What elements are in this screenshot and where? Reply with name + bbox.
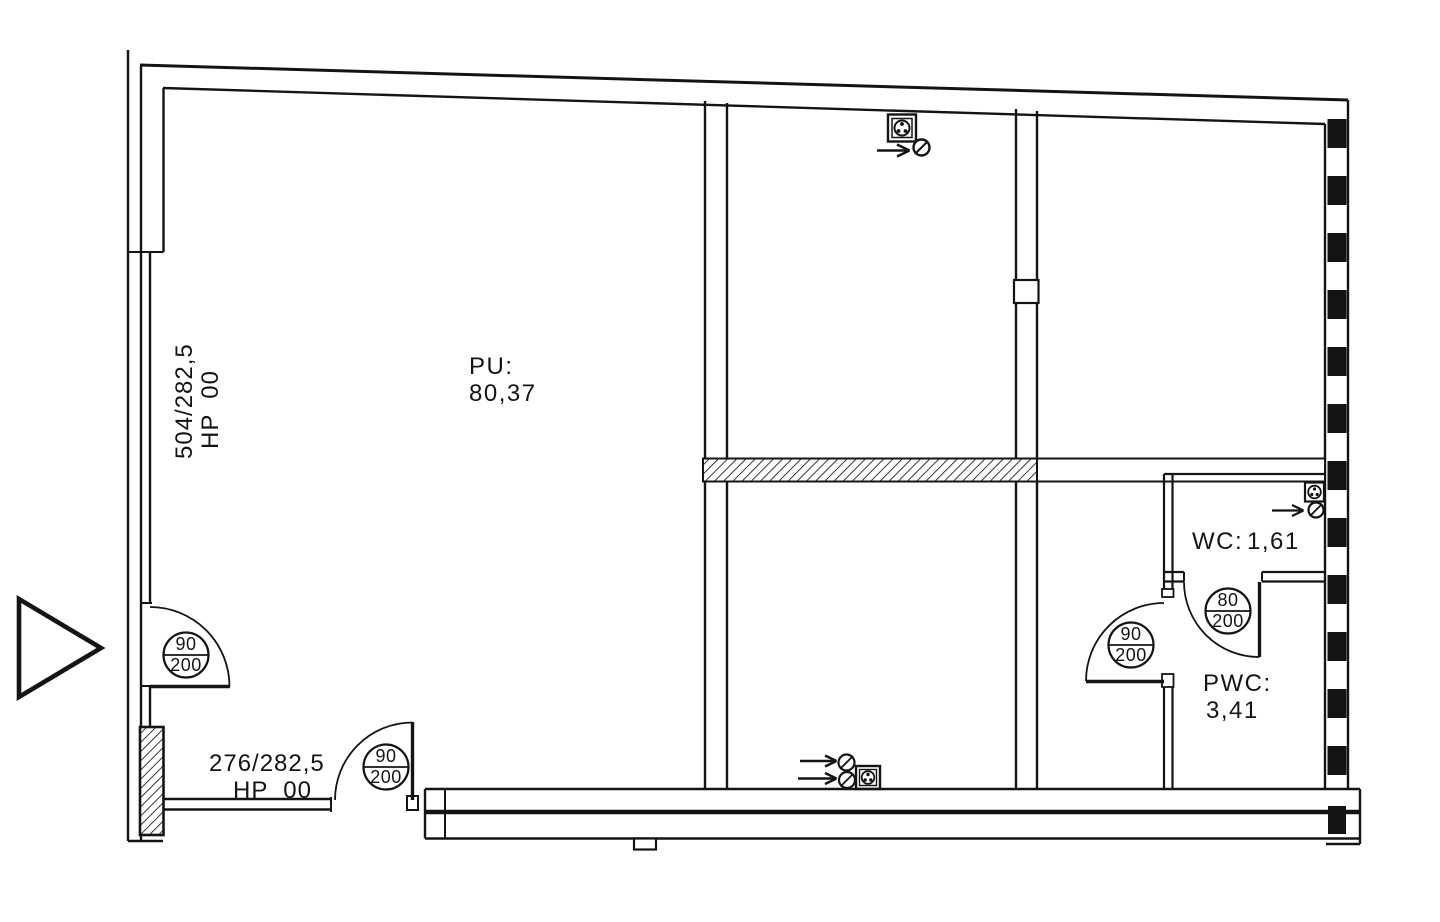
door-width-label: 90 xyxy=(1120,624,1141,644)
arrow-icon xyxy=(1272,505,1304,516)
interior-walls xyxy=(705,101,1039,789)
room-name: PU: xyxy=(469,353,514,380)
room-area: 80,37 xyxy=(469,380,537,407)
dimension-size: 276/282,5 xyxy=(209,750,325,777)
room-area: 3,41 xyxy=(1206,697,1259,724)
arrow-icon xyxy=(800,756,837,767)
beam-band xyxy=(703,459,1325,482)
door-height-label: 200 xyxy=(170,655,202,675)
door-width-label: 80 xyxy=(1217,590,1238,610)
room-name: PWC: xyxy=(1203,670,1272,697)
room-label-pu: PU: 80,37 xyxy=(469,353,537,407)
room-area: 1,61 xyxy=(1247,528,1300,555)
checker-wall xyxy=(1328,119,1347,775)
window-band xyxy=(425,789,1360,850)
floor-plan-sheet: 90 200 90 200 90 200 80 200 xyxy=(0,0,1440,922)
band-notch-marker xyxy=(634,839,656,850)
door-tag-entry: 90 200 xyxy=(164,633,209,678)
arrow-icon xyxy=(798,773,837,784)
dimension-bottom: 276/282,5 HP 00 xyxy=(209,750,325,804)
door-height-label: 200 xyxy=(1212,611,1244,631)
arrow-icon xyxy=(877,145,910,157)
wall-junction-box xyxy=(1014,280,1039,303)
door-height-label: 200 xyxy=(370,767,402,787)
room-name: WC: xyxy=(1192,528,1243,555)
floor-outlet-wc xyxy=(1272,483,1324,518)
room-label-wc: WC: 1,61 xyxy=(1192,528,1300,555)
dimension-left: 504/282,5 HP 00 xyxy=(171,343,224,459)
hatched-wall-pier xyxy=(140,727,164,835)
floor-plan-drawing: 90 200 90 200 90 200 80 200 xyxy=(0,0,1440,922)
dimension-ref: HP 00 xyxy=(233,777,312,804)
wc-pwc-walls xyxy=(1162,474,1325,789)
door-tag-terrace: 90 200 xyxy=(364,745,409,790)
band-black-block xyxy=(1328,806,1346,834)
room-label-pwc: PWC: 3,41 xyxy=(1203,670,1272,724)
door-width-label: 90 xyxy=(375,746,396,766)
dimension-ref: HP 00 xyxy=(197,370,224,449)
door-tag-wc: 80 200 xyxy=(1206,589,1251,634)
floor-outlet-bottom xyxy=(798,755,880,790)
floor-outlet-top xyxy=(877,115,930,157)
dimension-size: 504/282,5 xyxy=(171,343,198,459)
entry-direction-triangle-icon xyxy=(19,599,101,697)
door-height-label: 200 xyxy=(1115,645,1147,665)
beam-hatch xyxy=(703,459,1037,482)
door-width-label: 90 xyxy=(175,634,196,654)
door-tag-pwc: 90 200 xyxy=(1109,623,1154,668)
